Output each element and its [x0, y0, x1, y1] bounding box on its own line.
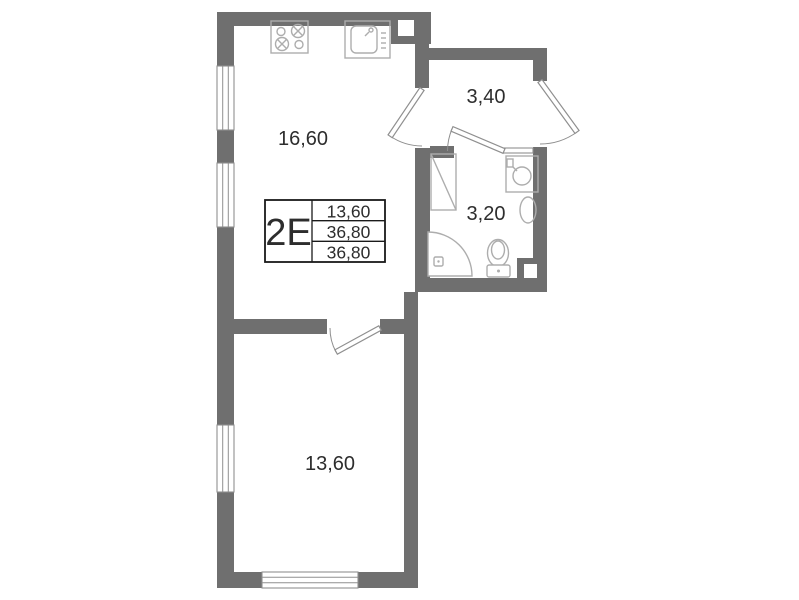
wall-segment — [533, 48, 547, 81]
window — [217, 66, 234, 130]
window — [262, 572, 358, 588]
wall-segment — [234, 319, 327, 334]
wall-segment — [404, 292, 418, 588]
washing-machine-icon — [431, 154, 456, 210]
toilet-icon — [487, 240, 510, 278]
unit-living-area-value: 13,60 — [327, 202, 371, 222]
room-area-label-hallway: 3,40 — [467, 86, 506, 108]
vent-shaft-opening — [398, 20, 414, 36]
window — [217, 163, 234, 227]
window — [217, 425, 234, 492]
room-area-label-bathroom: 3,20 — [467, 203, 506, 225]
wall-segment — [430, 146, 454, 158]
wall-segment — [415, 48, 547, 60]
wall-segment — [217, 572, 262, 588]
door-leaf — [451, 127, 505, 154]
door-leaf — [388, 88, 424, 138]
door-swing-arc — [330, 328, 336, 352]
door-leaf — [335, 326, 381, 354]
room-area-label-kitchen: 16,60 — [278, 128, 328, 150]
wall-segment — [415, 40, 429, 88]
thin-wall-segment — [503, 148, 533, 153]
floor-plan-page: 16,60 3,40 3,20 13,60 2Е 13,60 36,80 36,… — [0, 0, 799, 600]
room-area-label-bedroom: 13,60 — [305, 453, 355, 475]
wall-segment — [217, 130, 234, 163]
door-swing-arc — [390, 136, 422, 146]
kitchen-sink-icon — [345, 21, 390, 58]
vent-shaft-opening — [524, 264, 537, 278]
floor-plan-canvas: 16,60 3,40 3,20 13,60 2Е 13,60 36,80 36,… — [0, 0, 799, 600]
door-swing-arc — [540, 132, 577, 144]
unit-info-table: 2Е 13,60 36,80 36,80 — [265, 200, 385, 263]
unit-type-label: 2Е — [265, 212, 311, 254]
unit-area-value: 36,80 — [327, 222, 371, 242]
unit-total-area-value: 36,80 — [327, 243, 371, 263]
door-leaf — [538, 80, 579, 134]
shower-tray-icon — [428, 232, 472, 276]
wall-segment — [217, 12, 234, 66]
wall-segment — [217, 227, 234, 425]
wall-segment — [380, 319, 418, 334]
